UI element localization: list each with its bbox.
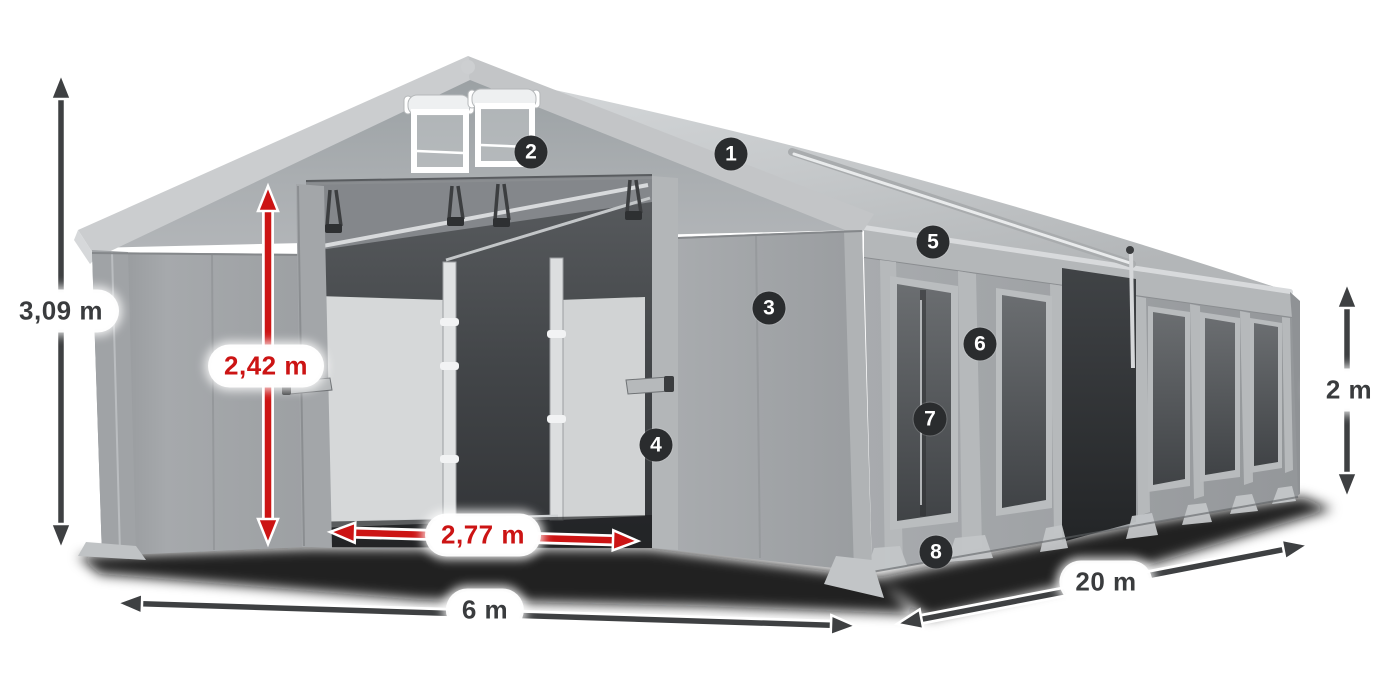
dimension-label-total-height: 3,09 m — [6, 293, 116, 330]
callout-badge-3: 3 — [753, 292, 786, 325]
callout-badge-6: 6 — [964, 328, 997, 361]
dimension-label-front-width: 6 m — [449, 592, 521, 629]
callout-badge-5: 5 — [917, 226, 950, 259]
tent-illustration — [0, 0, 1400, 700]
diagram-canvas: 3,09 m 2,42 m 2,77 m 6 m 20 m 2 m 1 2 3 … — [0, 0, 1400, 700]
dimension-label-side-wall-height: 2 m — [1313, 372, 1385, 409]
right-door-jamb — [652, 176, 678, 550]
dimension-label-side-length: 20 m — [1062, 564, 1149, 601]
callout-badge-2: 2 — [515, 136, 548, 169]
callout-badge-4: 4 — [640, 429, 673, 462]
dimension-label-door-width: 2,77 m — [428, 517, 538, 554]
door-opening — [306, 174, 652, 548]
right-wall — [652, 230, 884, 598]
left-vent — [404, 95, 474, 170]
callout-badge-8: 8 — [920, 536, 953, 569]
callout-badge-1: 1 — [715, 138, 748, 171]
dimension-label-door-height: 2,42 m — [211, 348, 321, 385]
callout-badge-7: 7 — [914, 403, 947, 436]
side-doorway — [1062, 246, 1136, 542]
